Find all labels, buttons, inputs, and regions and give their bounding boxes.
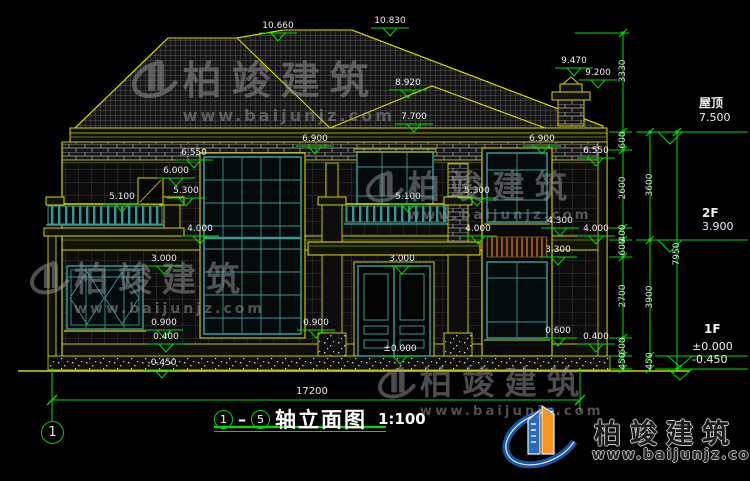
axis-bubble-1: 1 — [41, 421, 64, 444]
roof-level-label: 屋顶 7.500 — [699, 94, 731, 124]
elevation-marker: 0.900 — [142, 318, 186, 328]
drawing-scale: 1:100 — [378, 410, 426, 428]
watermark-text: 柏竣建筑 — [420, 358, 604, 404]
dimension-label: 7950 — [672, 230, 682, 278]
dimension-label: 600 — [618, 223, 628, 271]
brand-logo-text: 柏竣建筑 — [594, 412, 738, 451]
dimension-label: 3600 — [645, 161, 655, 209]
elevation-marker: 4.000 — [574, 224, 618, 234]
elevation-marker: 4.000 — [456, 224, 500, 234]
elevation-marker: 6.000 — [154, 166, 198, 176]
drawing-title-block: 1 – 5 轴立面图 1:100 — [214, 404, 426, 434]
dimension-label: 450 — [618, 337, 628, 385]
elevation-marker: 3.300 — [536, 245, 580, 255]
entrance-door — [354, 262, 434, 356]
drawing-title: 轴立面图 — [275, 404, 367, 434]
watermark-url: www.baijunjz.com — [408, 208, 592, 223]
overall-width-dimension: 17200 — [296, 387, 328, 397]
elevation-marker: 10.830 — [368, 16, 412, 26]
first-floor-elevation: ±0.000 -0.450 — [692, 340, 733, 366]
elevation-marker: 3.000 — [380, 254, 424, 264]
watermark: 柏竣建筑www.baijunjz.com — [408, 162, 592, 223]
watermark-text: 柏竣建筑 — [183, 50, 395, 106]
dimension-label: 3330 — [618, 47, 628, 95]
watermark-url: www.baijunjz.com — [183, 106, 395, 125]
cad-elevation-screenshot: 10.66010.8309.4709.2008.9207.7006.9006.9… — [0, 0, 750, 481]
title-dash: – — [238, 410, 246, 429]
watermark-text: 柏竣建筑 — [408, 162, 592, 208]
elevation-marker: 5.300 — [164, 186, 208, 196]
elevation-marker: 10.660 — [256, 21, 300, 31]
elevation-marker: 6.550 — [172, 148, 216, 158]
first-floor-label: 1F — [704, 322, 721, 336]
chimney — [552, 77, 590, 126]
elevation-marker: 9.200 — [576, 68, 620, 78]
elevation-marker: 6.900 — [520, 134, 564, 144]
title-axis-to: 5 — [251, 410, 270, 429]
elevation-marker: 5.100 — [100, 192, 144, 202]
elevation-marker: 0.400 — [574, 332, 618, 342]
elevation-marker: 6.550 — [574, 146, 618, 156]
watermark: 柏竣建筑www.baijunjz.com — [420, 358, 604, 419]
dimension-label: 450 — [645, 337, 655, 385]
elevation-marker: ±0.000 — [378, 344, 422, 354]
elevation-marker: 6.900 — [293, 134, 337, 144]
watermark-url: www.baijunjz.com — [74, 301, 265, 317]
title-axis-from: 1 — [214, 410, 233, 429]
elevation-marker: 4.000 — [178, 224, 222, 234]
elevation-marker: 0.400 — [144, 332, 188, 342]
elevation-marker: 0.900 — [294, 318, 338, 328]
watermark: 柏竣建筑www.baijunjz.com — [74, 252, 265, 317]
dimension-label: 2600 — [618, 164, 628, 212]
brand-logo-url: www.baijunjz.com — [592, 447, 750, 463]
elevation-marker: 7.700 — [392, 112, 436, 122]
watermark: 柏竣建筑www.baijunjz.com — [183, 50, 395, 125]
second-floor-label: 2F 3.900 — [702, 206, 734, 233]
watermark-text: 柏竣建筑 — [74, 252, 265, 301]
dimension-label: 3900 — [645, 273, 655, 321]
dimension-label: 600 — [618, 116, 628, 164]
dimension-label: 2700 — [618, 272, 628, 320]
elevation-marker: 9.470 — [552, 56, 596, 66]
watermark-url: www.baijunjz.com — [420, 404, 604, 419]
elevation-marker: -0.450 — [140, 358, 184, 368]
